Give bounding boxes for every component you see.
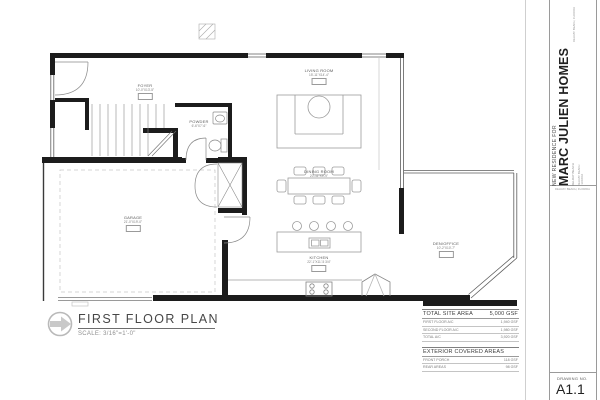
drawing-no: A1.1 (556, 381, 585, 397)
sectional-sofa (277, 95, 361, 148)
ceiling-tag-box (312, 78, 327, 85)
closet-x (218, 163, 242, 207)
table-header-label: EXTERIOR COVERED AREAS (423, 349, 504, 355)
range (306, 282, 332, 296)
room-label-living: LIVING ROOM 15'-11"X14'-4" (305, 68, 334, 85)
room-dims: 10'-0"X13'-5" (136, 88, 154, 92)
stool (293, 222, 302, 231)
ceiling-tag-box (138, 93, 153, 100)
row-value: 3,920 GSF (501, 335, 518, 339)
sheet-title: FIRST FLOOR PLAN (78, 312, 219, 326)
island-sink (309, 238, 330, 248)
stool (310, 222, 319, 231)
room-dims: 22'-1"X11'-5 3/4" (307, 260, 330, 264)
room-label-foyer: FOYER 10'-0"X13'-5" (136, 83, 154, 100)
table-row: SECOND FLOOR A/C 1,980 GSF (422, 327, 519, 335)
stool (344, 222, 353, 231)
sheet-scale: SCALE: 3/16"=1'-0" (78, 331, 136, 337)
titleblock-project-text: NEW RESIDENCE FOR MARC JULIEN HOMES DELR… (553, 14, 585, 186)
room-label-powder: POWDER 6'-6"X7'-6" (189, 119, 208, 128)
room-dims: 20'-11"X9'-9" (304, 174, 334, 178)
ceiling-tag-box (126, 225, 141, 232)
table-header-row: TOTAL SITE AREA 5,000 GSF (422, 309, 519, 319)
room-dims: 21'-0"X19'-0" (124, 220, 142, 224)
toilet-bowl (209, 140, 221, 151)
titleblock-divider (549, 372, 596, 373)
row-value: 98 GSF (506, 365, 518, 369)
margin-note: DELRAY BEACH, FLORIDA (572, 0, 576, 42)
equipment-pad (199, 24, 215, 39)
room-dims: 10'-2"X10'-7" (433, 246, 459, 250)
ceiling-tag-box (311, 265, 326, 272)
area-table: TOTAL SITE AREA 5,000 GSF FIRST FLOOR A/… (422, 309, 519, 372)
exterior-walls (42, 53, 517, 306)
drawing-sheet: FOYER 10'-0"X13'-5" POWDER 6'-6"X7'-6" L… (0, 0, 600, 400)
table-row: FIRST FLOOR A/C 1,940 GSF (422, 319, 519, 327)
client-name: MARC JULIEN HOMES (558, 14, 571, 186)
toilet-tank (221, 139, 227, 152)
living-furniture (277, 95, 361, 148)
title-logo-icon (49, 313, 72, 336)
table-header-label: TOTAL SITE AREA (423, 311, 473, 317)
row-value: 1,980 GSF (501, 328, 518, 332)
dining-table (288, 178, 350, 194)
powder-fixtures (209, 112, 227, 152)
table-row: REAR AREAS 98 GSF (422, 364, 519, 372)
room-label-dining: DINING ROOM 20'-11"X9'-9" (304, 169, 334, 178)
row-label: TOTAL A/C (423, 335, 441, 339)
title-underline (78, 328, 215, 329)
sheet-margin-line (525, 0, 526, 400)
row-label: FRONT PORCH (423, 358, 449, 362)
stool (327, 222, 336, 231)
row-label: FIRST FLOOR A/C (423, 320, 454, 324)
room-dims: 6'-6"X7'-6" (189, 124, 208, 128)
micro-note: DELRAY BEACH, FLORIDA (555, 187, 590, 191)
sheet-edge-line (596, 0, 597, 400)
room-dims: 15'-11"X14'-4" (305, 73, 334, 77)
table-header-value: 5,000 GSF (490, 311, 518, 317)
table-header-row: EXTERIOR COVERED AREAS (422, 347, 519, 357)
room-label-den-office: DEN/OFFICE 10'-2"X10'-7" (433, 241, 459, 258)
titleblock-border (549, 0, 550, 400)
row-label: REAR AREAS (423, 365, 446, 369)
row-value: 118 GSF (504, 358, 518, 362)
coffee-table (308, 96, 330, 118)
row-value: 1,940 GSF (501, 320, 518, 324)
windows (51, 54, 517, 298)
garage-door (58, 298, 152, 307)
table-row: FRONT PORCH 118 GSF (422, 357, 519, 365)
table-row: TOTAL A/C 3,920 GSF (422, 334, 519, 342)
address-line: FLORIDA (581, 14, 585, 186)
room-label-kitchen: KITCHEN 22'-1"X11'-5 3/4" (307, 255, 330, 272)
ceiling-tag-box (438, 251, 453, 258)
room-label-garage: GARAGE 21'-0"X19'-0" (124, 215, 142, 232)
row-label: SECOND FLOOR A/C (423, 328, 459, 332)
